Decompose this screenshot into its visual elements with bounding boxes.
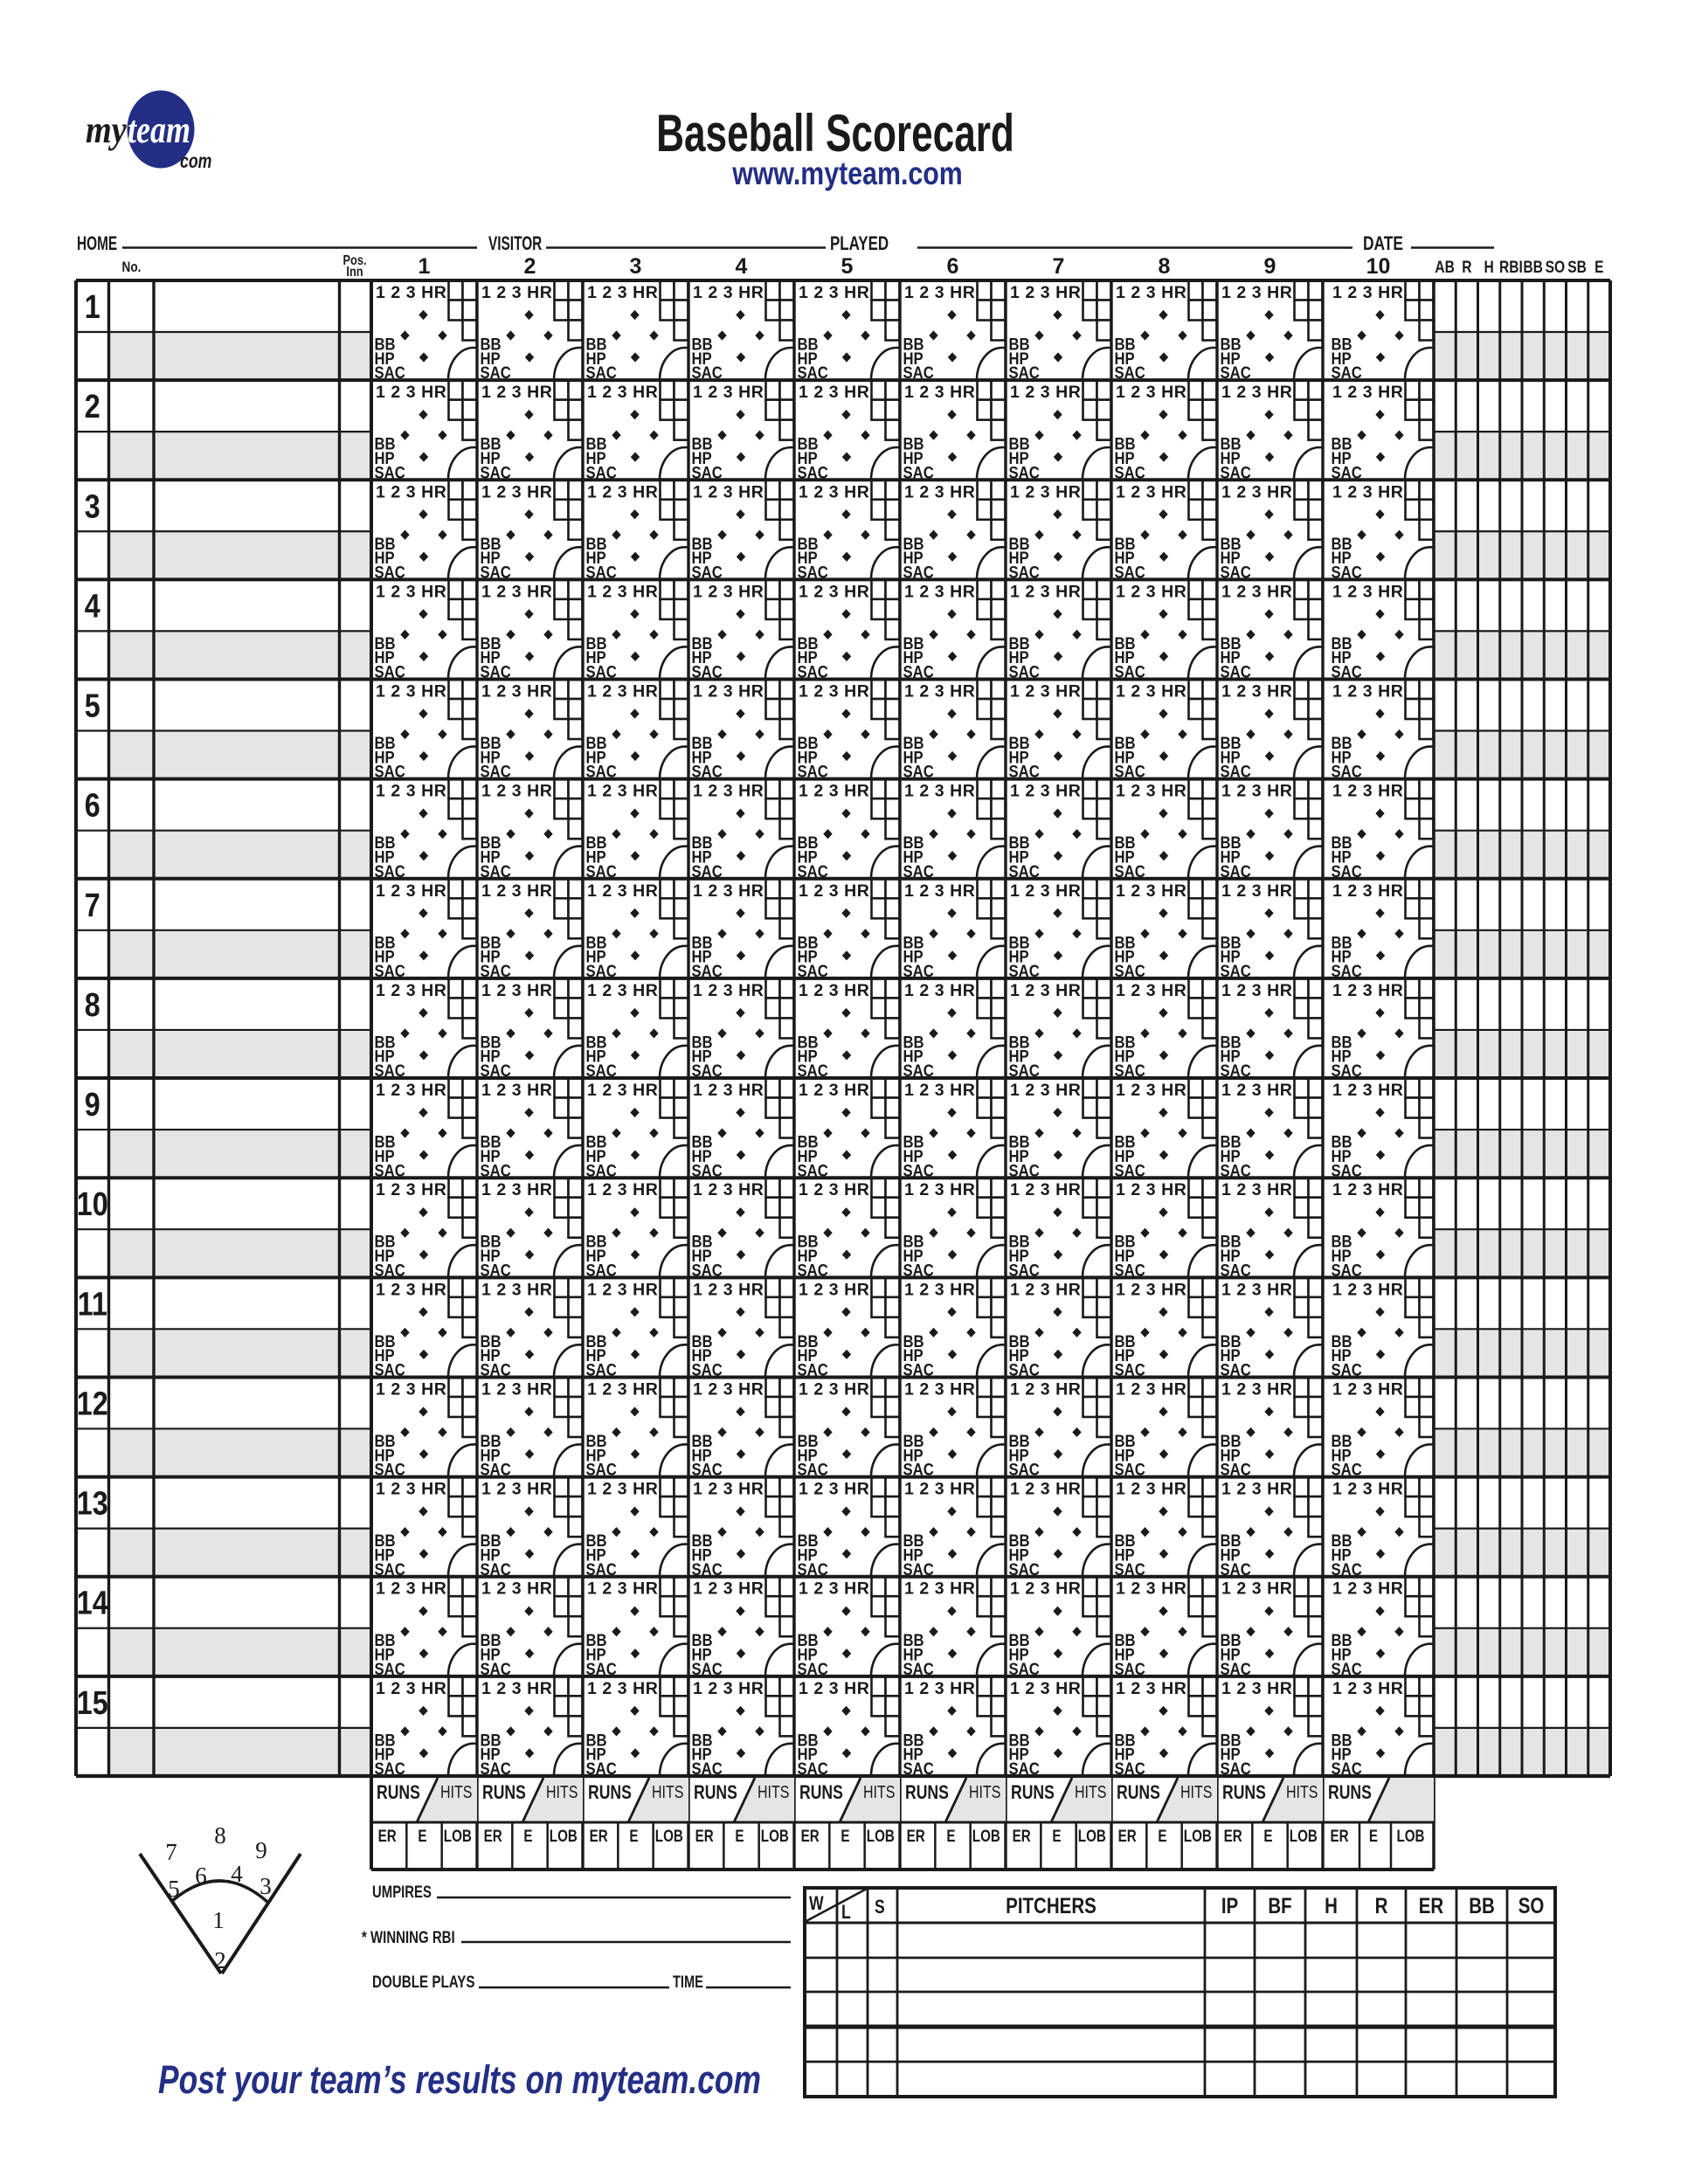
- svg-text:LOB: LOB: [1396, 1826, 1424, 1845]
- svg-text:4: 4: [85, 588, 100, 625]
- svg-text:5: 5: [85, 688, 100, 724]
- svg-text:LOB: LOB: [867, 1826, 895, 1845]
- svg-text:RUNS: RUNS: [377, 1782, 420, 1803]
- svg-text:10: 10: [1366, 254, 1391, 279]
- svg-text:ER: ER: [1330, 1826, 1349, 1845]
- svg-text:E: E: [629, 1826, 638, 1845]
- svg-text:ER: ER: [1118, 1826, 1138, 1845]
- svg-text:LOB: LOB: [1184, 1826, 1212, 1845]
- svg-text:DOUBLE PLAYS: DOUBLE PLAYS: [372, 1972, 475, 1991]
- svg-text:2: 2: [85, 389, 100, 425]
- svg-text:LOB: LOB: [655, 1826, 683, 1845]
- svg-text:H: H: [1484, 258, 1493, 277]
- svg-text:SO: SO: [1546, 258, 1566, 277]
- svg-text:RUNS: RUNS: [588, 1782, 632, 1803]
- svg-text:RUNS: RUNS: [482, 1782, 526, 1803]
- svg-text:2: 2: [214, 1947, 226, 1973]
- svg-text:VISITOR: VISITOR: [488, 233, 543, 254]
- svg-text:S: S: [875, 1897, 885, 1918]
- svg-text:3: 3: [85, 488, 100, 525]
- svg-text:ER: ER: [801, 1826, 820, 1845]
- svg-text:TIME: TIME: [673, 1973, 703, 1991]
- svg-text:11: 11: [78, 1286, 107, 1323]
- svg-text:BB: BB: [1523, 258, 1542, 277]
- svg-text:HITS: HITS: [969, 1782, 1000, 1801]
- svg-text:W: W: [809, 1893, 824, 1914]
- svg-text:ER: ER: [1013, 1826, 1032, 1845]
- svg-text:PLAYED: PLAYED: [830, 233, 889, 255]
- svg-text:LOB: LOB: [761, 1826, 789, 1845]
- svg-text:DATE: DATE: [1363, 233, 1403, 254]
- svg-text:HITS: HITS: [1286, 1782, 1318, 1801]
- svg-text:10: 10: [77, 1186, 108, 1223]
- svg-text:14: 14: [77, 1585, 108, 1621]
- svg-text:HITS: HITS: [1075, 1782, 1106, 1801]
- svg-text:9: 9: [255, 1837, 267, 1863]
- svg-text:* WINNING RBI: * WINNING RBI: [362, 1928, 455, 1946]
- svg-text:LOB: LOB: [444, 1826, 472, 1845]
- svg-text:ER: ER: [695, 1826, 715, 1845]
- svg-text:8: 8: [214, 1822, 226, 1849]
- svg-text:LOB: LOB: [1290, 1826, 1318, 1845]
- svg-text:AB: AB: [1435, 258, 1454, 277]
- svg-text:8: 8: [85, 987, 100, 1024]
- svg-text:RBI: RBI: [1499, 258, 1523, 277]
- svg-text:ER: ER: [1419, 1893, 1444, 1918]
- svg-text:E: E: [1263, 1826, 1272, 1845]
- svg-text:6: 6: [947, 254, 959, 279]
- svg-text:7: 7: [165, 1839, 177, 1865]
- svg-text:HITS: HITS: [758, 1782, 789, 1801]
- svg-text:RUNS: RUNS: [694, 1782, 737, 1803]
- svg-text:5: 5: [841, 254, 854, 279]
- svg-text:RUNS: RUNS: [905, 1782, 949, 1803]
- svg-text:LOB: LOB: [1078, 1826, 1106, 1845]
- svg-text:E: E: [418, 1826, 426, 1845]
- svg-text:PITCHERS: PITCHERS: [1006, 1893, 1097, 1918]
- svg-text:HOME: HOME: [77, 233, 117, 254]
- svg-text:No.: No.: [122, 259, 142, 276]
- svg-text:15: 15: [77, 1684, 108, 1721]
- svg-text:6: 6: [195, 1863, 207, 1889]
- svg-text:1: 1: [419, 254, 431, 279]
- svg-text:E: E: [946, 1826, 955, 1845]
- svg-text:5: 5: [168, 1876, 180, 1902]
- svg-text:LOB: LOB: [550, 1826, 578, 1845]
- svg-text:R: R: [1462, 258, 1472, 277]
- svg-text:www.myteam.com: www.myteam.com: [731, 156, 962, 192]
- svg-text:13: 13: [77, 1485, 108, 1522]
- svg-text:HITS: HITS: [440, 1782, 472, 1801]
- svg-text:IP: IP: [1221, 1893, 1238, 1918]
- svg-text:my: my: [86, 108, 127, 151]
- svg-text:L: L: [841, 1902, 851, 1923]
- svg-text:RUNS: RUNS: [799, 1782, 843, 1803]
- svg-text:BB: BB: [1469, 1893, 1495, 1918]
- svg-text:HITS: HITS: [1180, 1782, 1212, 1801]
- svg-text:HITS: HITS: [863, 1782, 895, 1801]
- svg-text:ER: ER: [907, 1826, 926, 1845]
- svg-text:HITS: HITS: [546, 1782, 578, 1801]
- svg-text:team: team: [128, 108, 190, 151]
- svg-text:E: E: [1052, 1826, 1061, 1845]
- svg-text:2: 2: [524, 254, 536, 279]
- svg-text:1: 1: [85, 289, 100, 326]
- svg-text:Baseball Scorecard: Baseball Scorecard: [656, 104, 1014, 162]
- svg-text:7: 7: [85, 887, 100, 923]
- svg-text:3: 3: [630, 254, 642, 279]
- svg-text:4: 4: [231, 1861, 243, 1887]
- svg-text:E: E: [1595, 258, 1603, 277]
- svg-text:ER: ER: [590, 1826, 609, 1845]
- svg-text:ER: ER: [1224, 1826, 1243, 1845]
- svg-text:com: com: [180, 150, 211, 173]
- svg-text:UMPIRES: UMPIRES: [372, 1883, 432, 1901]
- svg-text:6: 6: [85, 787, 100, 824]
- svg-text:8: 8: [1159, 254, 1171, 279]
- svg-text:SO: SO: [1519, 1893, 1545, 1918]
- svg-text:3: 3: [259, 1873, 272, 1899]
- svg-text:E: E: [523, 1826, 532, 1845]
- svg-text:ER: ER: [484, 1826, 503, 1845]
- svg-text:BF: BF: [1268, 1893, 1291, 1918]
- svg-text:1: 1: [212, 1907, 225, 1933]
- svg-text:E: E: [1158, 1826, 1166, 1845]
- svg-text:9: 9: [1264, 254, 1276, 279]
- svg-text:Inn: Inn: [346, 265, 363, 280]
- svg-text:R: R: [1375, 1893, 1388, 1918]
- svg-text:H: H: [1325, 1893, 1338, 1918]
- svg-text:RUNS: RUNS: [1011, 1782, 1055, 1803]
- svg-text:12: 12: [77, 1386, 108, 1422]
- svg-text:HITS: HITS: [652, 1782, 683, 1801]
- svg-text:RUNS: RUNS: [1328, 1782, 1372, 1803]
- svg-text:E: E: [735, 1826, 744, 1845]
- svg-text:SB: SB: [1567, 258, 1587, 277]
- svg-text:E: E: [841, 1826, 849, 1845]
- svg-text:E: E: [1369, 1826, 1378, 1845]
- svg-text:RUNS: RUNS: [1117, 1782, 1160, 1803]
- svg-text:Post your team’s results on my: Post your team’s results on myteam.com: [158, 2057, 761, 2102]
- svg-text:4: 4: [736, 254, 748, 279]
- svg-text:LOB: LOB: [972, 1826, 1000, 1845]
- svg-text:ER: ER: [378, 1826, 398, 1845]
- svg-text:9: 9: [85, 1087, 100, 1123]
- svg-text:RUNS: RUNS: [1222, 1782, 1266, 1803]
- svg-text:7: 7: [1053, 254, 1065, 279]
